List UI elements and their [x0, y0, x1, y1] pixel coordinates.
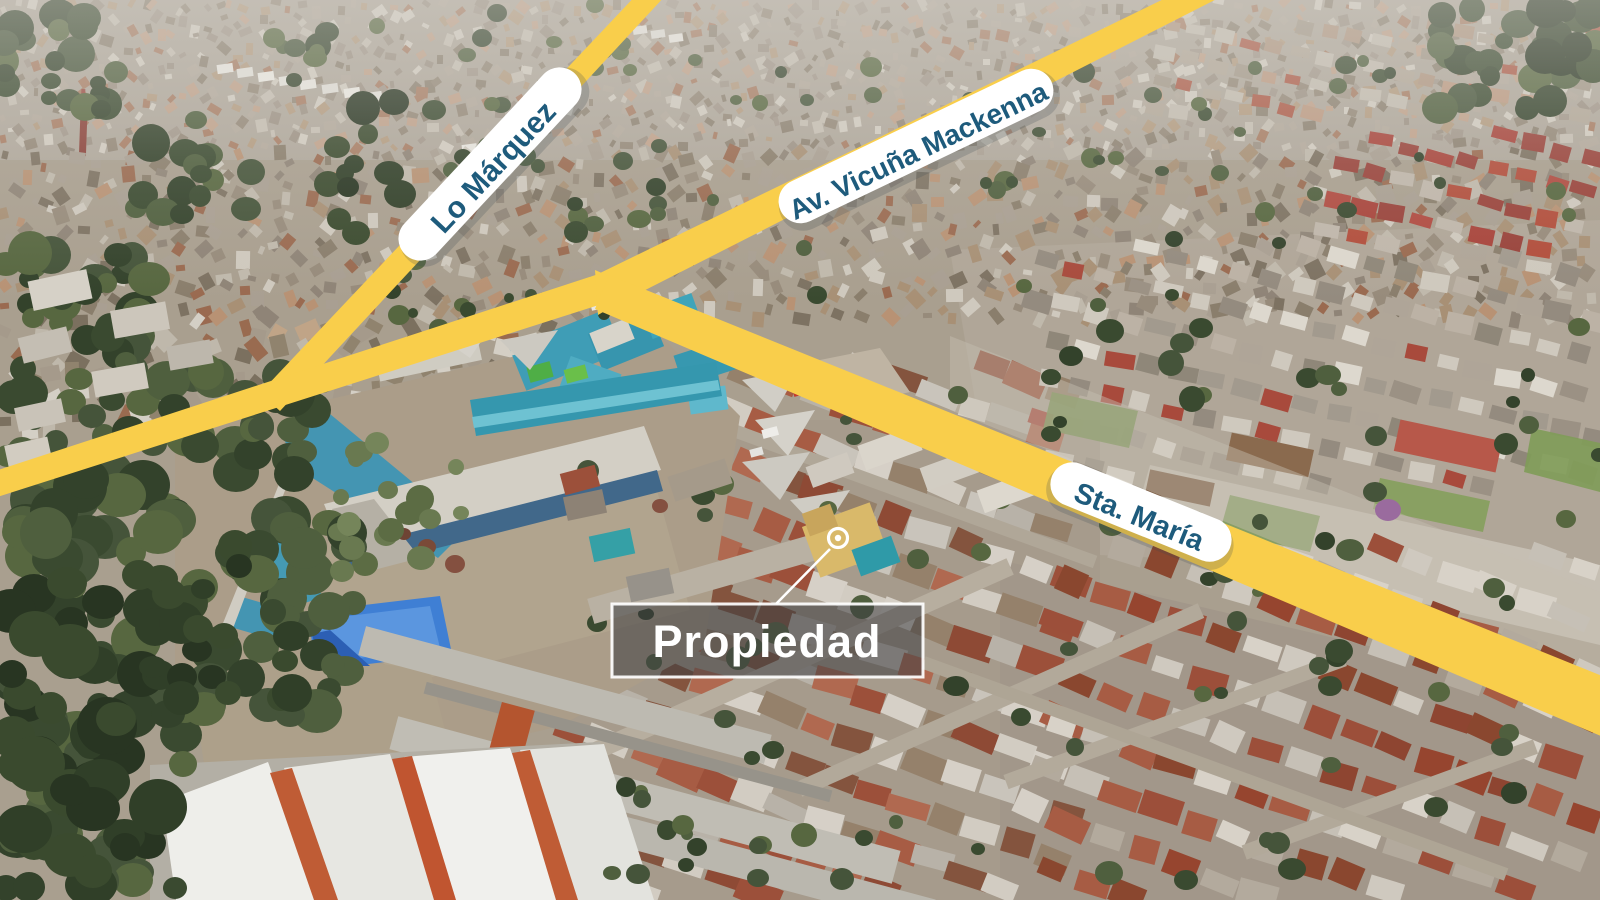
- svg-text:Propiedad: Propiedad: [652, 616, 881, 667]
